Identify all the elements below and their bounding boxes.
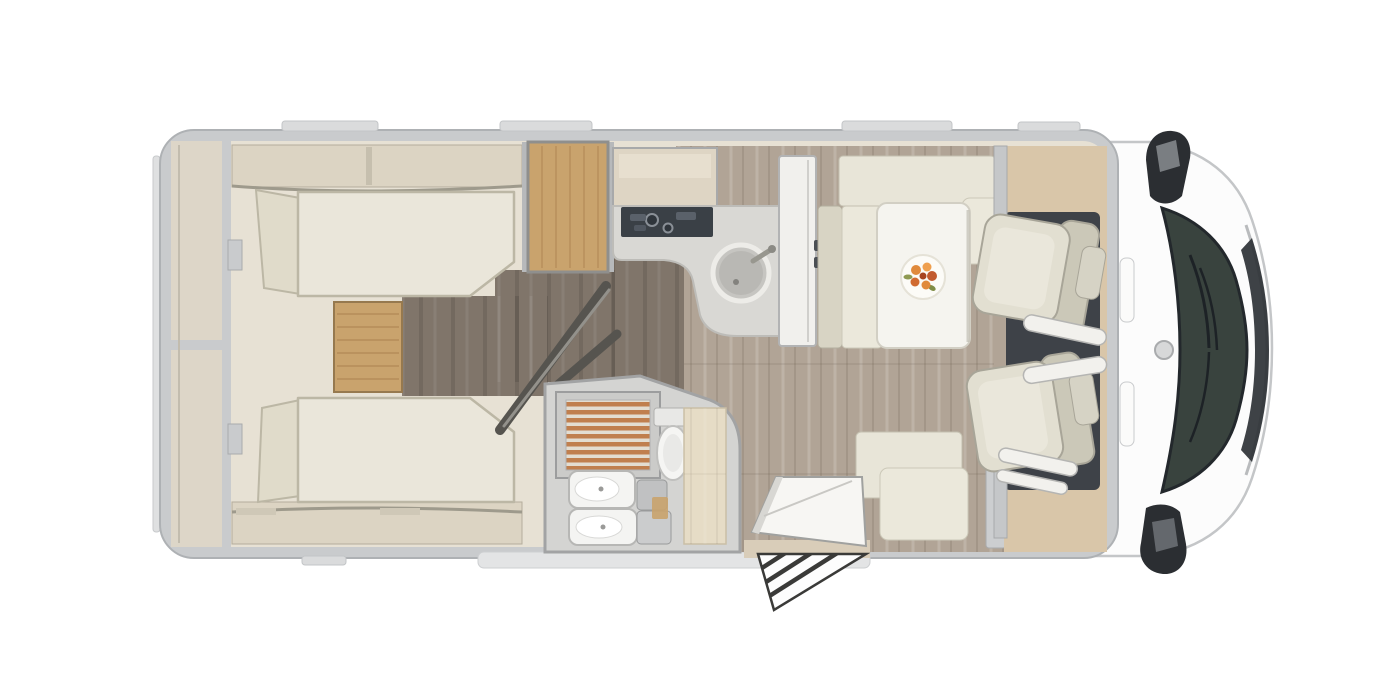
- floorplan-canvas: [0, 0, 1400, 700]
- hob-grate: [634, 225, 646, 231]
- hob-grate: [676, 212, 696, 220]
- seat-cushion-inner: [982, 226, 1056, 312]
- window-frame-tab: [500, 121, 592, 131]
- twin-bed-top: [298, 192, 514, 296]
- cab-pillar: [994, 146, 1007, 224]
- locker-door: [619, 154, 711, 178]
- bed-head-cushion: [258, 400, 300, 502]
- corridor-floor-texture: [495, 270, 615, 382]
- brand-emblem-icon: [1155, 341, 1173, 359]
- bench-backrest: [818, 206, 842, 348]
- bathroom: [545, 376, 740, 552]
- shelf-bracket: [380, 508, 420, 515]
- shower-wood-grate: [566, 400, 650, 470]
- bath-mat-texture: [684, 408, 726, 544]
- window-frame-tab: [302, 556, 346, 565]
- window-latch: [228, 424, 242, 454]
- basin-bowl: [576, 516, 622, 538]
- twin-bed-bottom: [298, 398, 514, 502]
- window-latch: [228, 240, 242, 270]
- sink-drain: [733, 279, 739, 285]
- fridge-cabinet: [779, 156, 816, 346]
- side-bench-seat: [880, 468, 968, 540]
- hob-grate: [630, 214, 646, 221]
- motorhome-floorplan: [0, 0, 1400, 700]
- burner-icon: [664, 224, 673, 233]
- toilet-seat: [663, 434, 683, 472]
- basin-drain: [601, 525, 606, 530]
- headboard-shelf: [232, 145, 522, 187]
- shelf-divider: [366, 147, 372, 185]
- basin-bowl: [575, 477, 619, 501]
- window-frame-tab: [1018, 122, 1080, 131]
- cab-door-trim: [1120, 258, 1134, 322]
- shelf-bracket: [236, 508, 276, 515]
- garage-wall: [222, 141, 231, 547]
- vanity-wood-trim: [652, 497, 668, 519]
- seat-cushion-inner: [976, 374, 1049, 461]
- rear-bumper: [153, 156, 160, 532]
- wardrobe-floor: [528, 142, 608, 272]
- bed-head-cushion: [256, 190, 300, 294]
- window-frame-tab: [282, 121, 378, 131]
- mirror-glass: [1152, 518, 1178, 552]
- window-frame-tab: [842, 121, 952, 131]
- basin-drain: [599, 487, 604, 492]
- burner-icon: [646, 214, 658, 226]
- wardrobe: [522, 142, 614, 272]
- faucet-base: [768, 245, 776, 253]
- side-mirror-right: [1140, 505, 1186, 575]
- bed-step: [334, 302, 402, 392]
- rear-garage: [171, 141, 231, 547]
- cab-door-trim: [1120, 382, 1134, 446]
